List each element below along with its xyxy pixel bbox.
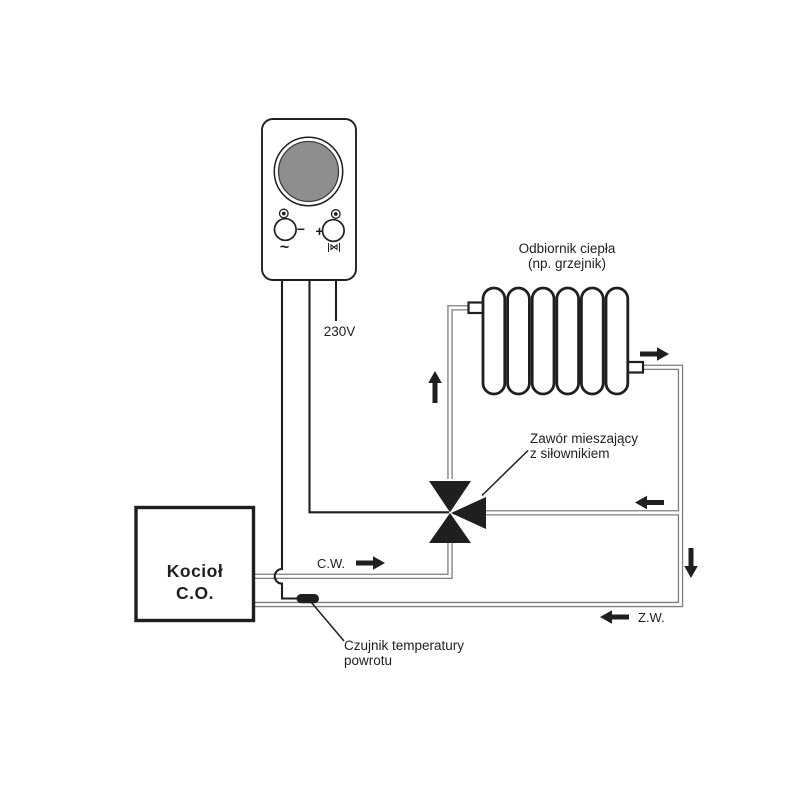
heating-diagram: Odbiornik ciepła (np. grzejnik) Zawór mi… (0, 0, 800, 800)
return-sensor-caption: Czujnik temperatury powrotu (344, 638, 464, 668)
left-led-dot (282, 212, 286, 216)
boiler-label-line2: C.O. (136, 583, 254, 605)
radiator-section (606, 288, 628, 394)
radiator-section (581, 288, 603, 394)
boiler-label: Kocioł C.O. (136, 561, 254, 604)
radiator-inlet-stub (469, 303, 484, 314)
return-sensor-body (297, 594, 320, 603)
mixing-valve-caption-line1: Zawór mieszający (530, 431, 638, 446)
radiator-section (508, 288, 530, 394)
boiler-supply-pipe-cw (254, 541, 450, 577)
flow-arrow-left-icon (635, 496, 664, 510)
flow-arrow-cw-right-icon (356, 556, 385, 570)
supply-flow-label: C.W. (317, 556, 345, 571)
mixing-valve-caption: Zawór mieszający z siłownikiem (530, 431, 638, 461)
flow-arrow-right-icon (640, 347, 669, 361)
flow-arrow-down-icon (684, 548, 698, 578)
radiator-section (483, 288, 505, 394)
flow-arrow-up-icon (428, 371, 442, 403)
supply-pipe-valve-to-radiator (450, 308, 470, 479)
return-sensor-caption-line2: powrotu (344, 653, 464, 668)
radiator-caption-line1: Odbiornik ciepła (462, 241, 672, 256)
radiator-section (557, 288, 579, 394)
radiator-section (532, 288, 554, 394)
flow-arrow-zw-left-icon (600, 610, 629, 624)
power-voltage-label: 230V (318, 324, 362, 339)
radiator-caption-line2: (np. grzejnik) (462, 256, 672, 271)
controller-dial (279, 142, 339, 202)
sensor-wire (275, 280, 298, 599)
valve-mode-icon: ⋈ (328, 243, 340, 252)
mixing-valve-caption-line2: z siłownikiem (530, 446, 638, 461)
plus-symbol: + (312, 224, 327, 238)
radiator-caption: Odbiornik ciepła (np. grzejnik) (462, 241, 672, 271)
valve-label-leader-line (482, 451, 528, 496)
radiator-outlet-stub (627, 362, 643, 373)
right-led-dot (334, 212, 338, 216)
return-flow-label: Z.W. (638, 610, 665, 625)
sine-mode-symbol: ~ (276, 240, 293, 256)
boiler-label-line1: Kocioł (136, 561, 254, 583)
controller-wires (275, 280, 449, 599)
sensor-label-leader-line (311, 602, 344, 641)
diagram-canvas (0, 0, 800, 800)
valve-actuator-wire (310, 280, 450, 512)
minus-symbol: − (293, 222, 309, 236)
radiator-return-pipe-right (641, 367, 681, 513)
radiator (469, 288, 644, 394)
return-sensor-caption-line1: Czujnik temperatury (344, 638, 464, 653)
